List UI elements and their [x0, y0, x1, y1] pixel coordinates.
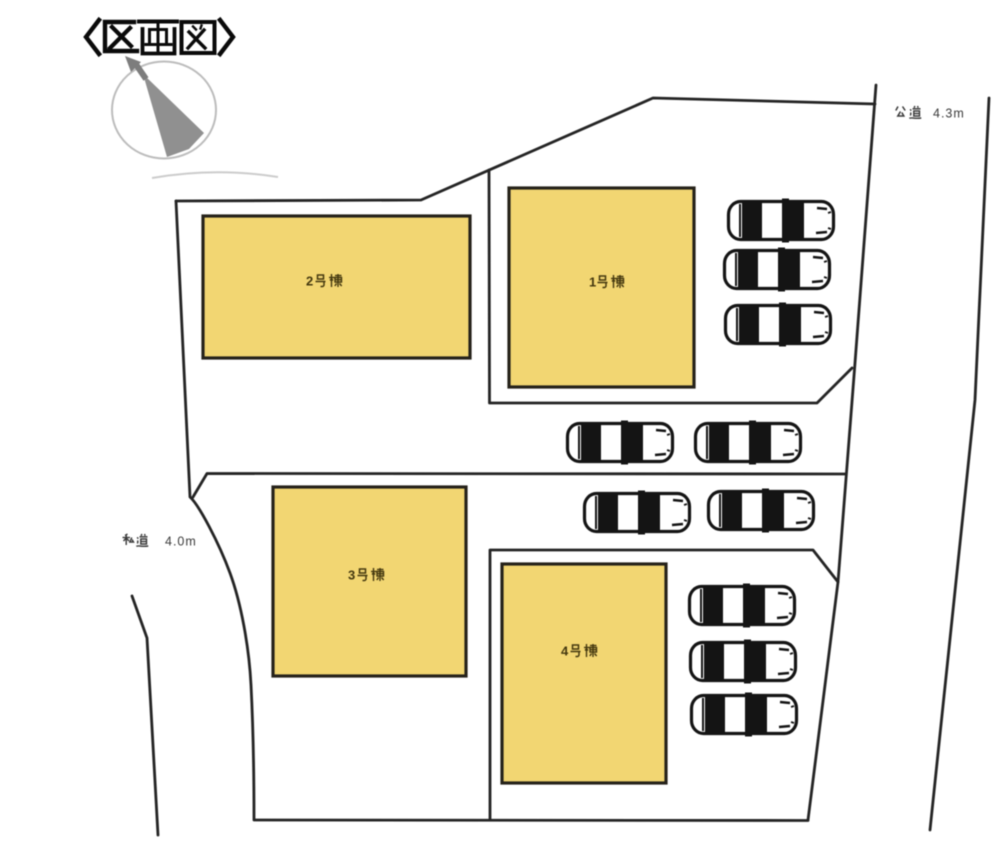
- svg-text:4.0m: 4.0m: [165, 535, 197, 549]
- svg-text:2: 2: [306, 274, 313, 289]
- svg-text:4: 4: [561, 644, 569, 659]
- svg-text:3: 3: [348, 568, 355, 583]
- svg-text:1: 1: [589, 275, 596, 290]
- svg-text:4.3m: 4.3m: [933, 107, 965, 121]
